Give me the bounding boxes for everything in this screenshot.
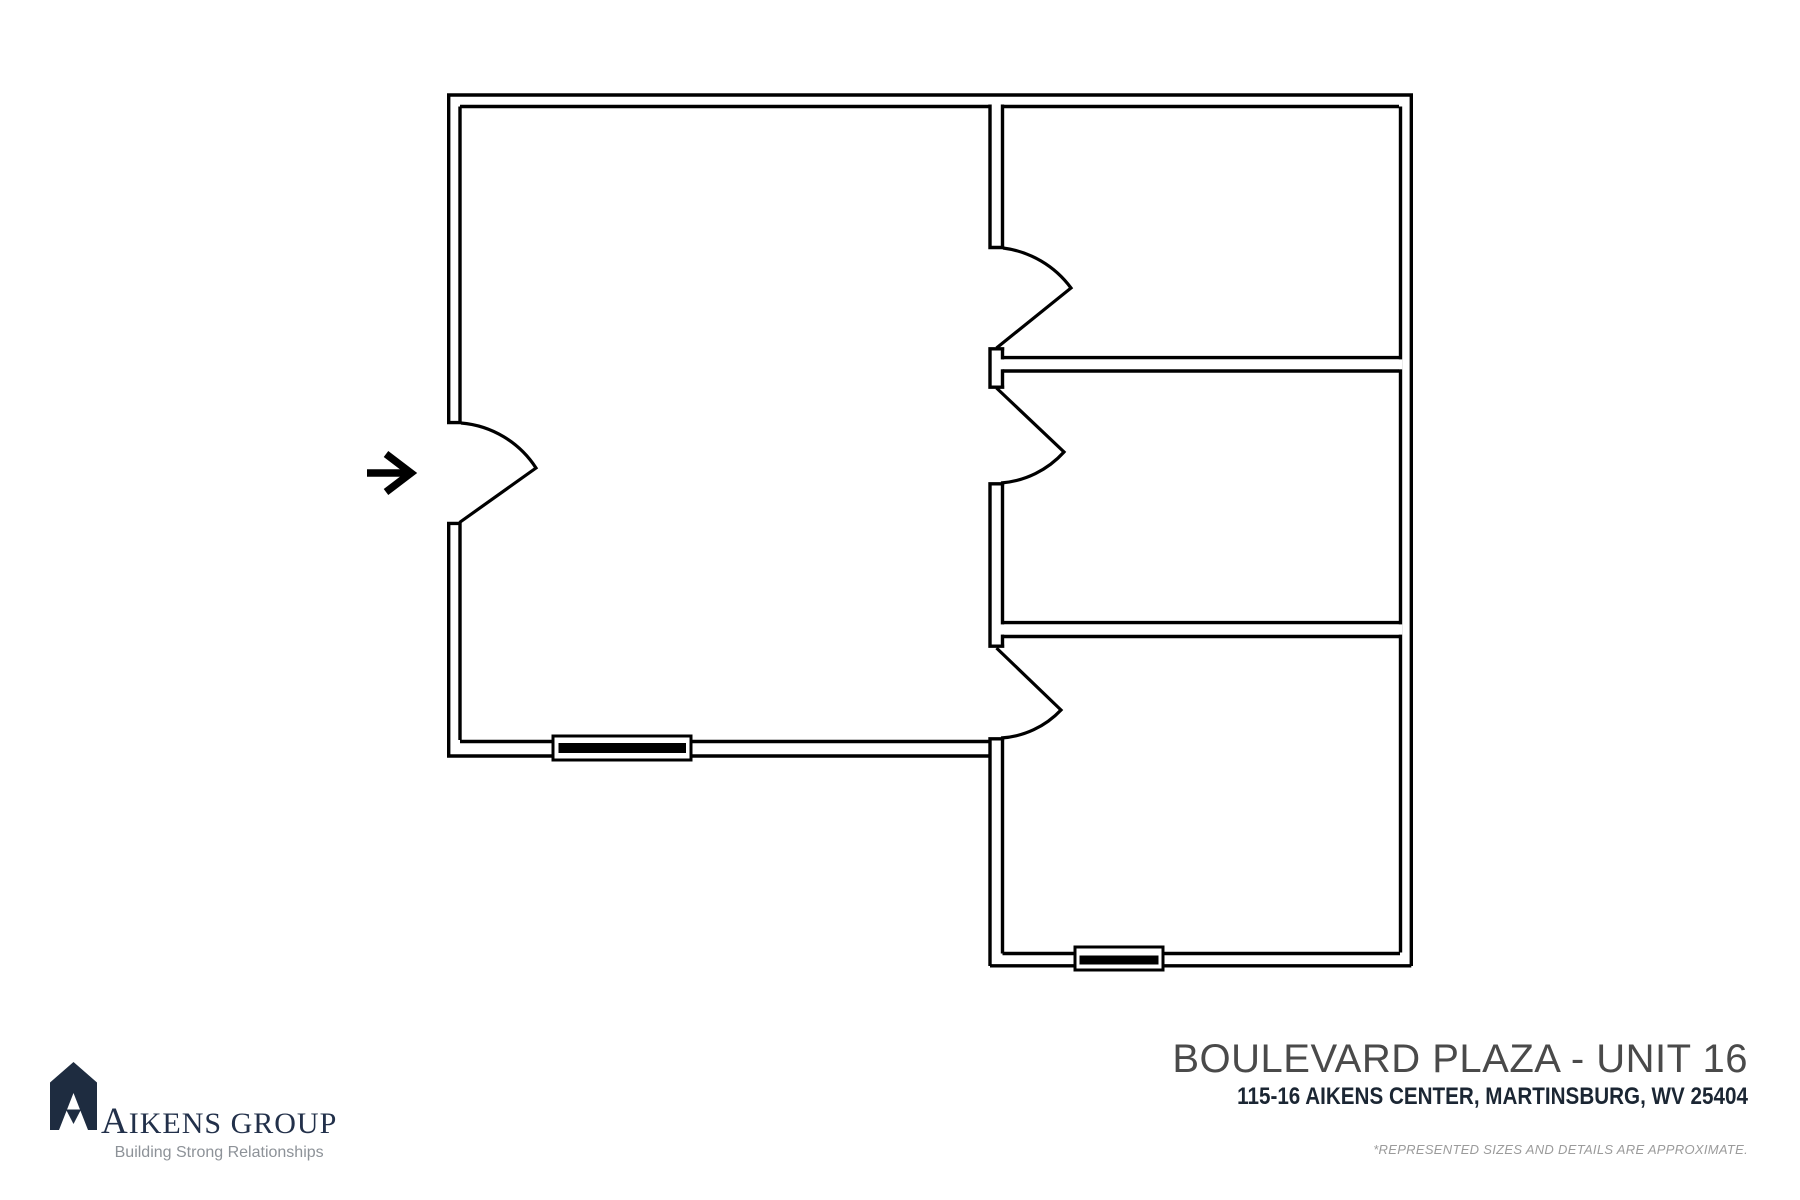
plan-bottom-wall bbox=[990, 954, 1411, 966]
logo-mark-icon bbox=[50, 1062, 98, 1130]
window-symbol-2 bbox=[1075, 947, 1163, 970]
logo-mark-inner-triangle bbox=[66, 1110, 81, 1125]
wall-outline bbox=[447, 95, 1413, 966]
window-symbol-1 bbox=[553, 736, 691, 760]
main-room-bottom-wall bbox=[447, 742, 990, 757]
door-swing-bottom-right-room bbox=[997, 648, 1062, 738]
door-swing-middle-right-room bbox=[997, 388, 1065, 483]
entry-arrow-icon bbox=[367, 454, 411, 492]
logo-tagline: Building Strong Relationships bbox=[101, 1144, 337, 1162]
property-address: 115-16 AIKENS CENTER, MARTINSBURG, WV 25… bbox=[1237, 1083, 1748, 1111]
right-wall bbox=[1401, 95, 1412, 966]
door-swing-top-right-room bbox=[997, 248, 1072, 348]
page-title: BOULEVARD PLAZA - UNIT 16 bbox=[1154, 1038, 1748, 1080]
entry-door-swing bbox=[460, 423, 537, 523]
left-wall bbox=[447, 95, 462, 757]
logo-name: AIKENS GROUP bbox=[101, 1103, 337, 1140]
title-block: BOULEVARD PLAZA - UNIT 16 115-16 AIKENS … bbox=[1154, 1038, 1748, 1157]
logo-text: AIKENS GROUP Building Strong Relationshi… bbox=[101, 1062, 337, 1162]
aikens-group-logo: AIKENS GROUP Building Strong Relationshi… bbox=[50, 1062, 337, 1162]
floor-plan bbox=[0, 0, 1800, 1200]
top-wall bbox=[447, 95, 1413, 107]
disclaimer-text: *REPRESENTED SIZES AND DETAILS ARE APPRO… bbox=[1154, 1142, 1748, 1157]
room-dividers bbox=[999, 358, 1402, 637]
page: { "page": { "width": 1800, "height": 120… bbox=[0, 0, 1800, 1200]
interior-wall-segment bbox=[988, 484, 1004, 646]
door-swings bbox=[460, 248, 1072, 738]
